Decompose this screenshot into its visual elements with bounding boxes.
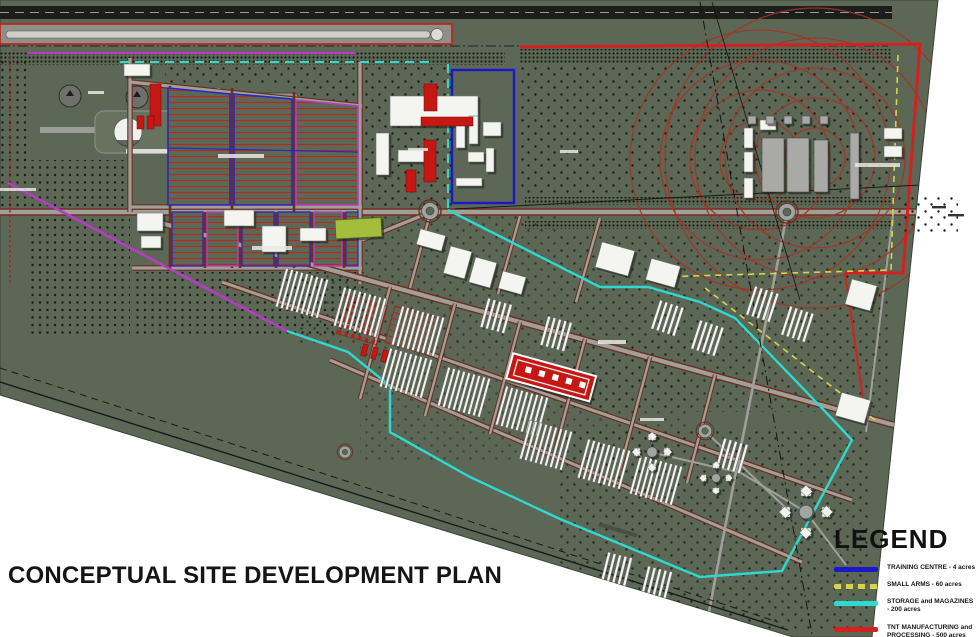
legend-item-training-centre: TRAINING CENTRE - 4 acres (834, 564, 976, 572)
offmap-marks (896, 196, 964, 236)
legend-label: TRAINING CENTRE - 4 acres (887, 564, 975, 572)
legend-label-line1: TNT MANUFACTURING and (887, 624, 972, 631)
legend-item-storage: STORAGE and MAGAZINES - 200 acres (834, 598, 976, 614)
site-plan-drawing (0, 0, 976, 637)
small-arms-swatch (834, 584, 878, 589)
training-centre-swatch (834, 567, 878, 572)
range-strip (0, 24, 452, 44)
legend-label: SMALL ARMS - 60 acres (887, 581, 962, 589)
legend-item-tnt: TNT MANUFACTURING and PROCESSING - 500 a… (834, 624, 976, 637)
tnt-swatch (834, 627, 878, 632)
storage-swatch (834, 601, 878, 606)
site-plan-sheet: CONCEPTUAL SITE DEVELOPMENT PLAN LEGEND … (0, 0, 976, 637)
legend-label-line2: PROCESSING - 500 acres (887, 632, 966, 637)
legend-item-small-arms: SMALL ARMS - 60 acres (834, 581, 976, 589)
green-building (335, 218, 382, 239)
sheet-title: CONCEPTUAL SITE DEVELOPMENT PLAN (8, 562, 502, 590)
legend-label: STORAGE and MAGAZINES - 200 acres (887, 598, 976, 614)
map-area (0, 0, 965, 637)
legend-heading: LEGEND (834, 524, 976, 555)
legend-label: TNT MANUFACTURING and PROCESSING - 500 a… (887, 624, 972, 637)
legend: LEGEND TRAINING CENTRE - 4 acres SMALL A… (834, 524, 976, 637)
